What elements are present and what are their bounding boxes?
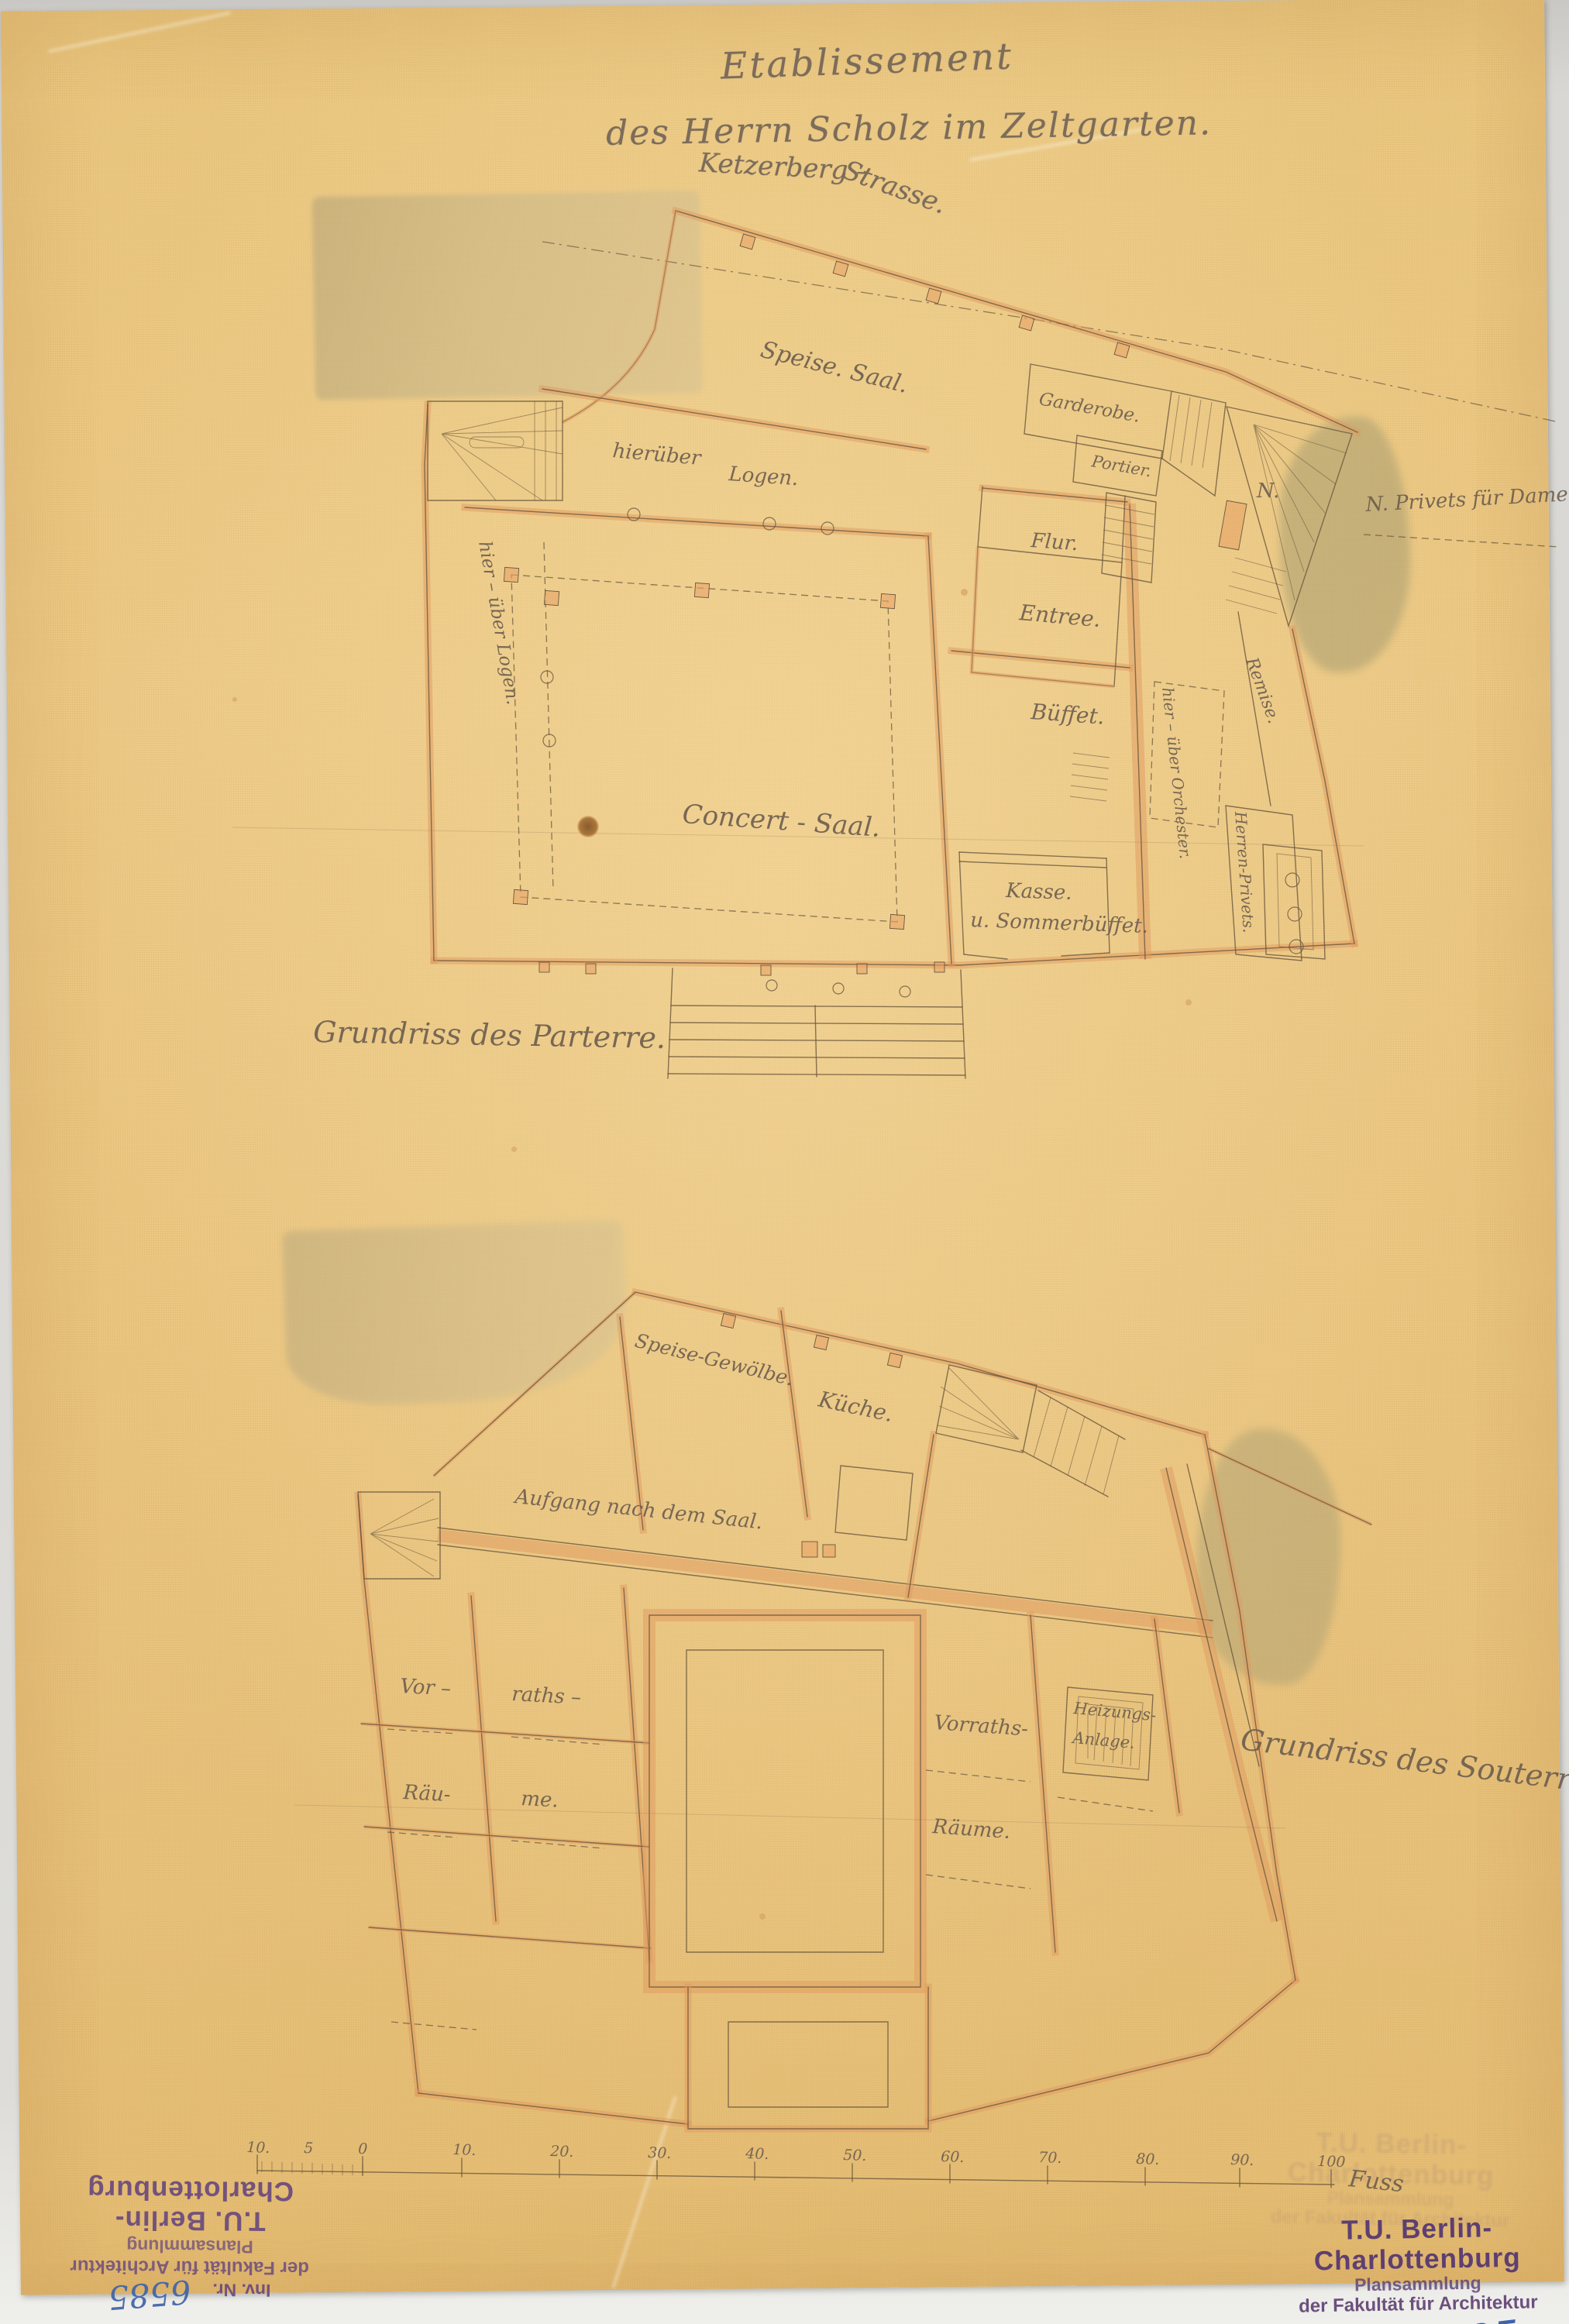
north-east-staircase bbox=[1219, 407, 1352, 626]
scale-labels: 10. 5 0 10. 20. 30. 40. 50. 60. 70. 80. … bbox=[246, 2139, 1346, 2171]
stamp-left-rotated: Inv. Nr. 6585 der Fakultät für Architekt… bbox=[30, 2174, 349, 2315]
stamp-inv-label: Inv. Nr. bbox=[212, 2280, 270, 2300]
caption-parterre: Grundriss des Parterre. bbox=[313, 1015, 666, 1055]
scanned-sheet: Etablissement des Herrn Scholz im Zeltga… bbox=[0, 0, 1569, 2324]
room-label-raeu: Räu- bbox=[402, 1781, 452, 1807]
scale-label: 70. bbox=[1038, 2149, 1062, 2167]
scale-label: 80. bbox=[1136, 2150, 1160, 2168]
room-label-entree: Entree. bbox=[1017, 600, 1102, 632]
parterre-room-labels: Speise. Saal. Garderobe. Portier. Flur. … bbox=[474, 336, 1569, 938]
room-label-sommerbueffet: u. Sommerbüffet. bbox=[970, 909, 1149, 938]
souterrain-plan: Speise-Gewölbe. Küche. Aufgang nach dem … bbox=[294, 1292, 1569, 2129]
scale-label: 50. bbox=[843, 2147, 867, 2164]
scale-label: 30. bbox=[648, 2144, 672, 2162]
scale-label: 40. bbox=[745, 2145, 769, 2163]
scale-label: 5 bbox=[304, 2140, 314, 2157]
room-label-kueche: Küche. bbox=[816, 1386, 896, 1427]
stamp-line-tu: T.U. Berlin-Charlottenburg bbox=[31, 2174, 349, 2237]
scale-label: 60. bbox=[941, 2148, 965, 2166]
room-label-vor: Vor – bbox=[400, 1675, 452, 1700]
room-label-flur: Flur. bbox=[1030, 529, 1079, 555]
caption-souterrain: Grundriss des Souterrain. bbox=[1239, 1722, 1569, 1803]
room-label-vorraths: Vorraths- bbox=[934, 1711, 1030, 1741]
room-label-heizungs: Heizungs- bbox=[1072, 1699, 1158, 1724]
parterre-walls bbox=[425, 211, 1357, 965]
room-label-hierueber: hierüber bbox=[611, 439, 703, 470]
room-label-raeume: Räume. bbox=[931, 1815, 1012, 1844]
stamp-line-plansammlung: Plansammlung bbox=[31, 2235, 349, 2257]
facade-piers bbox=[740, 234, 1130, 358]
room-label-logen: Logen. bbox=[728, 462, 800, 490]
scale-label: 10. bbox=[452, 2141, 477, 2159]
room-label-portier: Portier. bbox=[1089, 452, 1153, 480]
room-label-garderobe: Garderobe. bbox=[1037, 389, 1141, 427]
room-label-concertsaal: Concert - Saal. bbox=[681, 799, 881, 844]
west-staircase bbox=[428, 401, 563, 500]
inventory-number-handwritten: 6585 bbox=[107, 2273, 192, 2315]
room-label-privets: Herren-Privets. bbox=[1231, 810, 1258, 933]
souterrain-west-staircase bbox=[358, 1492, 440, 1579]
scale-label: 10. bbox=[246, 2139, 270, 2157]
stamp-right: T.U. Berlin-Charlottenburg Plansammlung … bbox=[1273, 2212, 1562, 2324]
room-label-anlage: Anlage. bbox=[1071, 1728, 1136, 1752]
room-label-gewoelbe: Speise-Gewölbe. bbox=[633, 1329, 797, 1391]
stamp-line-fakultaet: der Fakultät für Architektur bbox=[31, 2254, 349, 2278]
scale-label: 20. bbox=[549, 2143, 574, 2161]
room-label-me: me. bbox=[521, 1787, 559, 1812]
stamp-ghost-line: T.U. Berlin-Charlottenburg bbox=[1224, 2126, 1558, 2192]
stamp-inventory-row: Inv. Nr. 6585 bbox=[30, 2275, 348, 2315]
room-label-kasse: Kasse. bbox=[1005, 879, 1072, 905]
parterre-plan: Speise. Saal. Garderobe. Portier. Flur. … bbox=[232, 211, 1569, 1078]
room-label-logen-side: hier – über Logen. bbox=[474, 540, 523, 706]
plan-drawing: Speise. Saal. Garderobe. Portier. Flur. … bbox=[0, 0, 1569, 2324]
stair-label-n: N. bbox=[1256, 480, 1279, 503]
room-label-raths: raths – bbox=[511, 1683, 582, 1710]
annotation-privets-damen: N. Privets für Damen bbox=[1364, 482, 1569, 517]
room-label-bueffet: Büffet. bbox=[1030, 699, 1106, 730]
room-label-remise: Remise. bbox=[1241, 655, 1283, 727]
concert-hall-colonnade bbox=[504, 508, 904, 930]
room-label-speisesaal: Speise. Saal. bbox=[758, 336, 910, 399]
scale-label: 0 bbox=[358, 2140, 368, 2157]
room-label-orchester: hier – über Orchester. bbox=[1158, 686, 1195, 860]
stamp-line-tu: T.U. Berlin-Charlottenburg bbox=[1273, 2212, 1560, 2278]
